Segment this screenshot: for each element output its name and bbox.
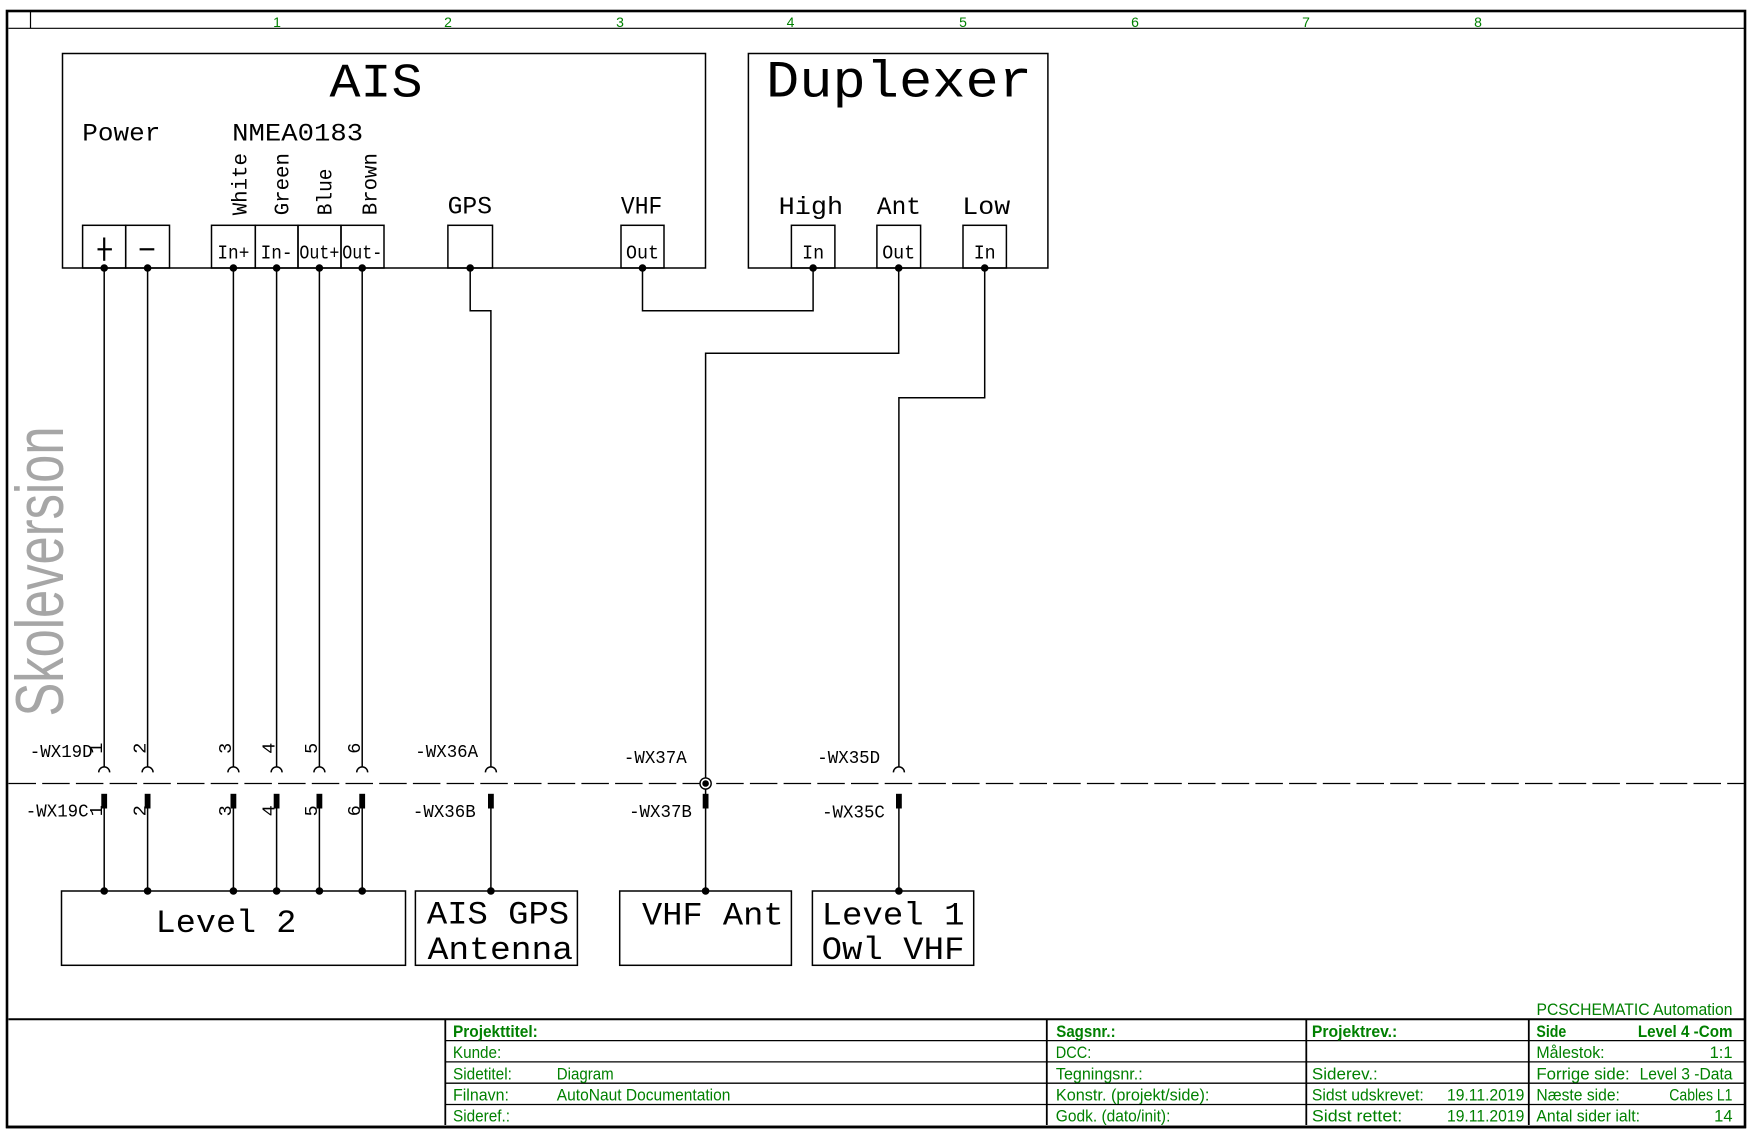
svg-text:Godk. (dato/init):: Godk. (dato/init): (1056, 1108, 1171, 1126)
svg-text:Blue: Blue (316, 169, 339, 216)
svg-text:Skoleversion: Skoleversion (2, 427, 78, 717)
svg-text:Sideref.:: Sideref.: (453, 1108, 510, 1126)
svg-text:6: 6 (345, 743, 366, 754)
svg-text:1: 1 (87, 743, 108, 754)
svg-text:-WX35D: -WX35D (817, 749, 880, 769)
svg-text:Level 1: Level 1 (822, 897, 965, 934)
svg-text:AIS: AIS (330, 57, 423, 111)
svg-text:Sidst rettet:: Sidst rettet: (1312, 1108, 1402, 1126)
svg-text:Kunde:: Kunde: (453, 1044, 501, 1062)
svg-text:In: In (802, 242, 824, 264)
svg-text:2: 2 (444, 14, 452, 30)
svg-text:White: White (230, 153, 253, 215)
svg-text:Målestok:: Målestok: (1536, 1044, 1604, 1062)
svg-text:19.11.2019: 19.11.2019 (1447, 1108, 1524, 1126)
svg-text:Diagram: Diagram (557, 1065, 614, 1083)
svg-text:Konstr. (projekt/side):: Konstr. (projekt/side): (1056, 1086, 1210, 1104)
svg-text:Green: Green (272, 153, 295, 215)
svg-text:Næste side:: Næste side: (1536, 1086, 1620, 1104)
svg-text:Siderev.:: Siderev.: (1312, 1065, 1378, 1083)
svg-text:Duplexer: Duplexer (766, 53, 1032, 112)
svg-text:PCSCHEMATIC Automation: PCSCHEMATIC Automation (1537, 1001, 1733, 1019)
svg-text:14: 14 (1714, 1108, 1732, 1126)
svg-text:4: 4 (259, 743, 280, 754)
svg-text:NMEA0183: NMEA0183 (232, 119, 363, 148)
svg-text:Cables L1: Cables L1 (1669, 1086, 1732, 1104)
svg-text:1:1: 1:1 (1710, 1044, 1733, 1062)
svg-text:Projekttitel:: Projekttitel: (453, 1023, 538, 1041)
svg-text:5: 5 (302, 805, 323, 816)
svg-text:6: 6 (345, 805, 366, 816)
svg-text:In+: In+ (217, 242, 249, 264)
svg-text:-WX19C: -WX19C (26, 803, 89, 823)
svg-text:-WX37A: -WX37A (624, 749, 687, 769)
svg-text:Out-: Out- (342, 242, 382, 264)
svg-text:DCC:: DCC: (1056, 1044, 1092, 1062)
svg-text:-WX37B: -WX37B (629, 803, 692, 823)
svg-text:Filnavn:: Filnavn: (453, 1086, 509, 1104)
svg-text:-WX35C: -WX35C (822, 803, 885, 823)
svg-text:Level 2: Level 2 (156, 905, 297, 942)
svg-text:Forrige side:: Forrige side: (1536, 1065, 1629, 1083)
svg-text:Sagsnr.:: Sagsnr.: (1056, 1023, 1115, 1041)
svg-text:1: 1 (87, 805, 108, 816)
svg-text:GPS: GPS (448, 193, 492, 222)
svg-text:Brown: Brown (361, 153, 384, 215)
svg-text:5: 5 (302, 743, 323, 754)
svg-text:-WX36B: -WX36B (413, 803, 476, 823)
svg-text:Owl VHF: Owl VHF (822, 932, 965, 969)
svg-text:AIS GPS: AIS GPS (427, 897, 569, 934)
svg-text:Level 3 -Data: Level 3 -Data (1640, 1065, 1734, 1083)
svg-text:-WX36A: -WX36A (415, 743, 478, 763)
svg-text:Ant: Ant (877, 193, 921, 222)
svg-text:Out+: Out+ (299, 242, 339, 264)
svg-text:AutoNaut Documentation: AutoNaut Documentation (557, 1086, 731, 1104)
svg-text:In-: In- (261, 242, 293, 264)
svg-text:-WX19D: -WX19D (30, 743, 93, 763)
svg-text:3: 3 (616, 14, 624, 30)
svg-text:4: 4 (787, 14, 795, 30)
svg-text:Sidst udskrevet:: Sidst udskrevet: (1312, 1086, 1424, 1104)
svg-text:8: 8 (1474, 14, 1482, 30)
svg-text:Antal sider ialt:: Antal sider ialt: (1536, 1108, 1640, 1126)
svg-text:Power: Power (82, 119, 160, 148)
svg-text:5: 5 (959, 14, 967, 30)
svg-text:In: In (974, 242, 996, 264)
svg-text:3: 3 (216, 743, 237, 754)
svg-text:1: 1 (273, 14, 281, 30)
svg-text:VHF Ant: VHF Ant (642, 897, 784, 934)
svg-text:Projektrev.:: Projektrev.: (1312, 1023, 1397, 1041)
svg-text:7: 7 (1302, 14, 1310, 30)
svg-text:19.11.2019: 19.11.2019 (1447, 1086, 1524, 1104)
svg-text:Sidetitel:: Sidetitel: (453, 1065, 512, 1083)
svg-text:Tegningsnr.:: Tegningsnr.: (1056, 1065, 1143, 1083)
svg-text:Side: Side (1536, 1023, 1566, 1041)
svg-text:3: 3 (216, 805, 237, 816)
svg-text:2: 2 (130, 805, 151, 816)
svg-text:2: 2 (130, 743, 151, 754)
svg-text:6: 6 (1131, 14, 1139, 30)
svg-text:Out: Out (626, 242, 659, 264)
svg-text:Out: Out (882, 242, 915, 264)
svg-text:High: High (779, 193, 844, 222)
svg-text:Low: Low (962, 193, 1010, 222)
svg-text:Level 4 -Com: Level 4 -Com (1638, 1023, 1733, 1041)
svg-text:Antenna: Antenna (428, 932, 573, 969)
svg-text:4: 4 (259, 805, 280, 816)
svg-text:VHF: VHF (621, 193, 662, 222)
